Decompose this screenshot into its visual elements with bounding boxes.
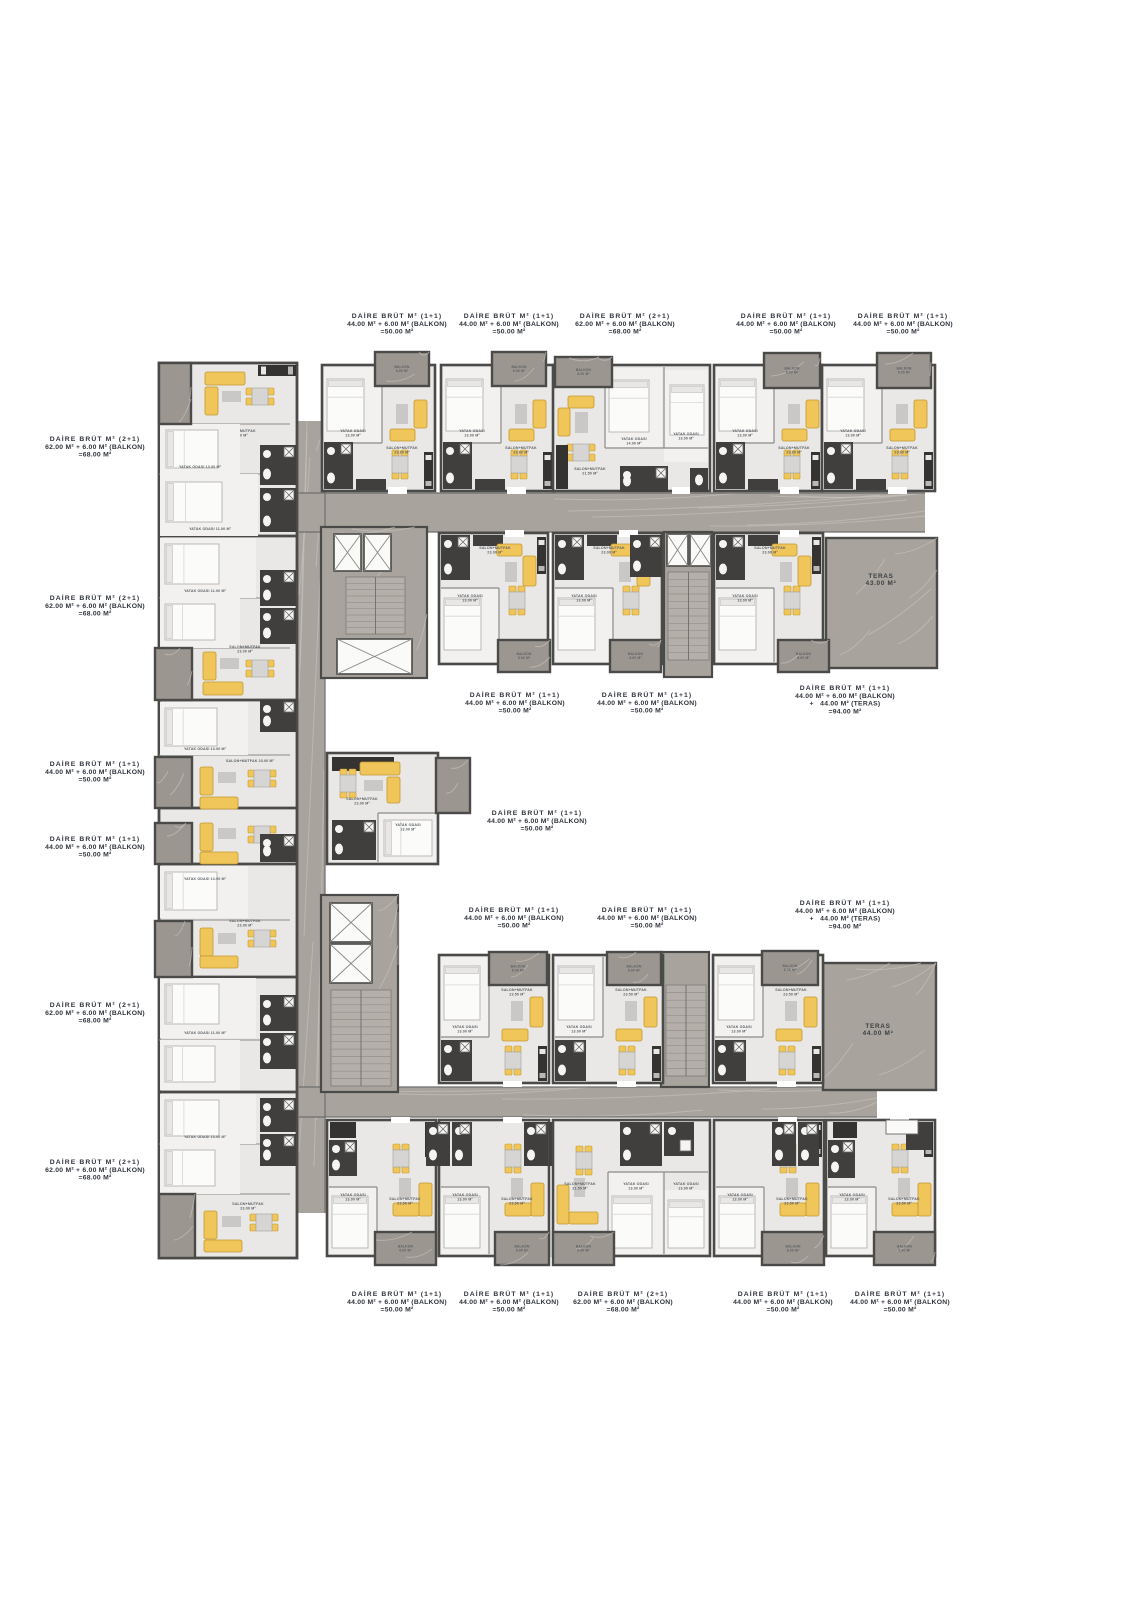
- svg-text:YATAK ODASI 13.00 M²: YATAK ODASI 13.00 M²: [184, 877, 227, 881]
- svg-text:BALKON6.00 M²: BALKON6.00 M²: [394, 365, 409, 373]
- svg-text:BALKON6.00 M²: BALKON6.00 M²: [796, 652, 811, 660]
- svg-text:BALKON6.00 M²: BALKON6.00 M²: [897, 1245, 912, 1253]
- svg-text:BALKON6.00 M²: BALKON6.00 M²: [516, 652, 531, 660]
- svg-text:YATAK ODASI 13.00 M²: YATAK ODASI 13.00 M²: [184, 747, 227, 751]
- svg-text:BALKON6.00 M²: BALKON6.00 M²: [511, 365, 526, 373]
- svg-text:BALKON6.00 M²: BALKON6.00 M²: [510, 965, 525, 973]
- svg-text:BALKON6.00 M²: BALKON6.00 M²: [398, 1245, 413, 1253]
- svg-text:TERAS44.00 M²: TERAS44.00 M²: [863, 1023, 894, 1037]
- svg-text:BALKON6.00 M²: BALKON6.00 M²: [626, 965, 641, 973]
- svg-text:BALKON6.00 M²: BALKON6.00 M²: [784, 367, 799, 375]
- svg-text:YATAK ODASI 11.00 M²: YATAK ODASI 11.00 M²: [184, 589, 227, 593]
- svg-text:YATAK ODASI 13.00 M²: YATAK ODASI 13.00 M²: [184, 1135, 227, 1139]
- svg-text:YATAK ODASI 11.00 M²: YATAK ODASI 11.00 M²: [184, 1031, 227, 1035]
- svg-text:BALKON6.00 M²: BALKON6.00 M²: [896, 367, 911, 375]
- svg-text:YATAK ODASI 11.00 M²: YATAK ODASI 11.00 M²: [189, 527, 232, 531]
- svg-text:BALKON6.00 M²: BALKON6.00 M²: [576, 368, 591, 376]
- svg-text:BALKON6.00 M²: BALKON6.00 M²: [514, 1245, 529, 1253]
- svg-text:BALKON6.00 M²: BALKON6.00 M²: [576, 1245, 591, 1253]
- svg-text:YATAK ODASI 13.00 M²: YATAK ODASI 13.00 M²: [179, 465, 222, 469]
- svg-text:BALKON6.00 M²: BALKON6.00 M²: [785, 1245, 800, 1253]
- svg-text:TERAS43.00 M²: TERAS43.00 M²: [866, 573, 897, 587]
- svg-text:SALON+MUTFAK 23.00 M²: SALON+MUTFAK 23.00 M²: [226, 759, 275, 763]
- svg-text:BALKON6.00 M²: BALKON6.00 M²: [628, 652, 643, 660]
- svg-text:BALKON6.00 M²: BALKON6.00 M²: [782, 964, 797, 972]
